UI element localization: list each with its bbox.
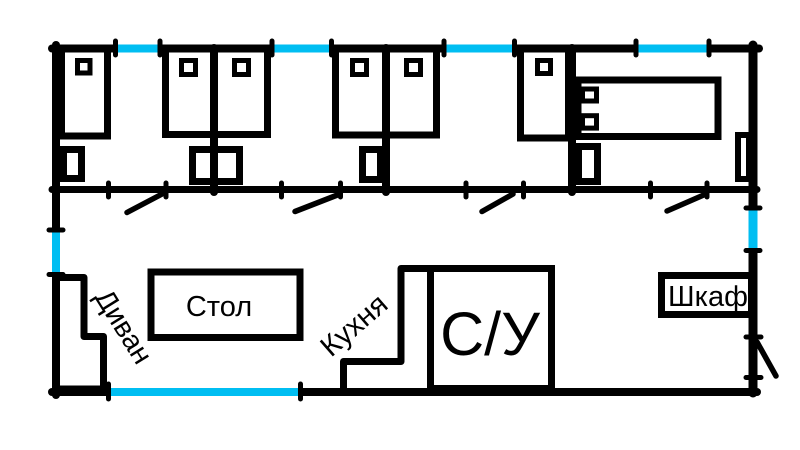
svg-text:Стол: Стол — [186, 291, 252, 323]
svg-text:Шкаф: Шкаф — [668, 281, 748, 313]
svg-text:Кухня: Кухня — [315, 288, 395, 363]
svg-text:С/У: С/У — [440, 300, 541, 368]
